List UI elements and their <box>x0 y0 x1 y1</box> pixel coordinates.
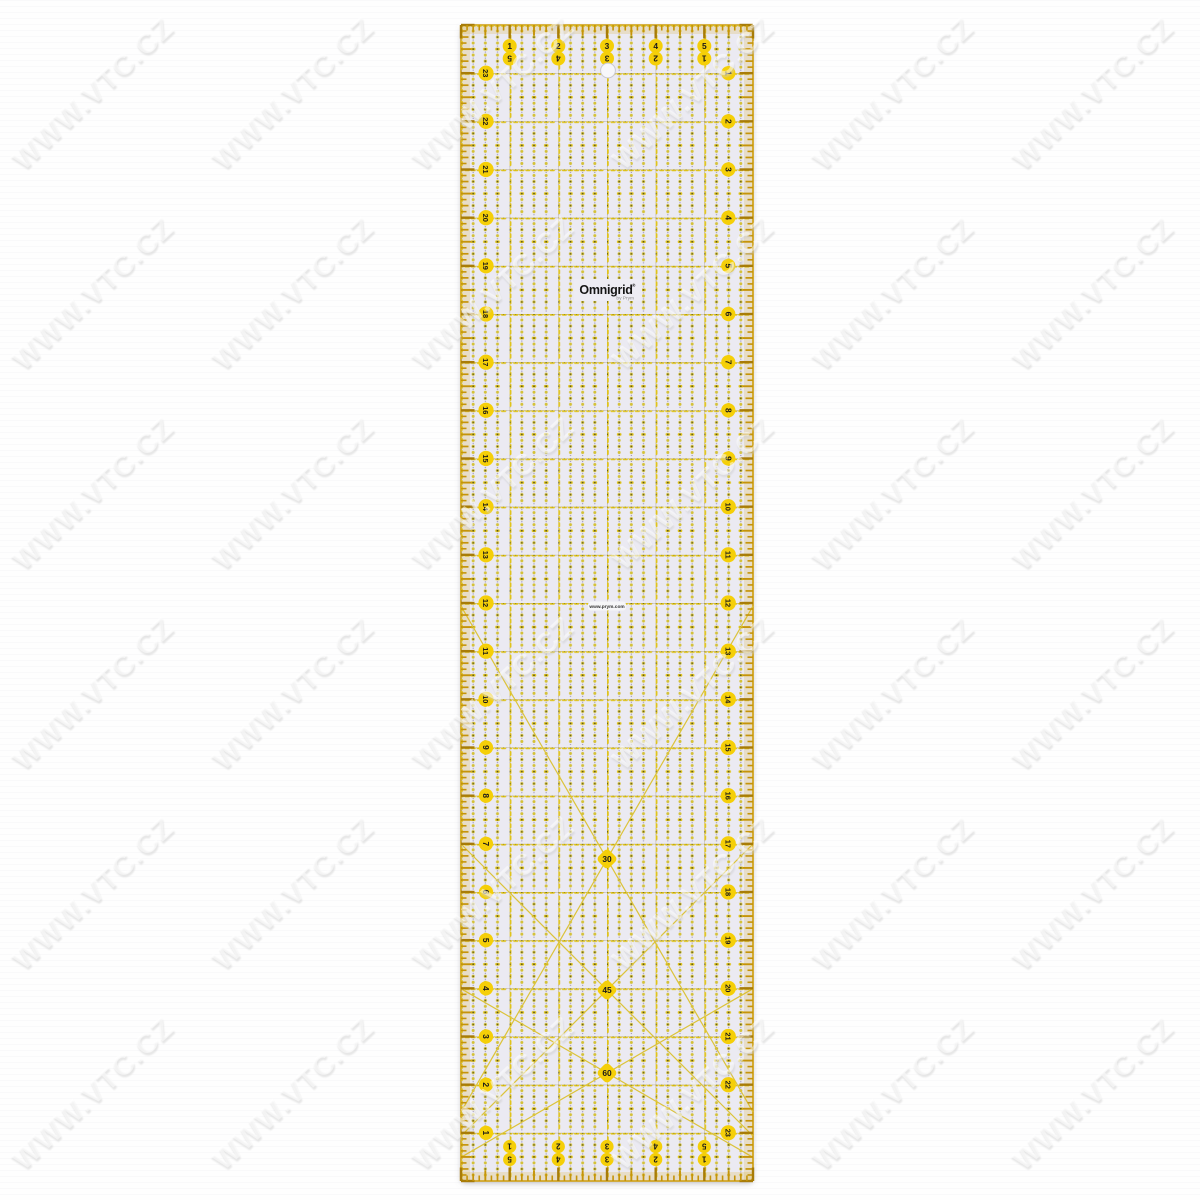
svg-text:by Prym: by Prym <box>616 296 634 302</box>
svg-text:8: 8 <box>723 408 733 413</box>
svg-text:2: 2 <box>723 119 733 124</box>
svg-text:1: 1 <box>481 1130 491 1135</box>
svg-text:3: 3 <box>604 54 609 64</box>
svg-text:4: 4 <box>481 986 491 991</box>
svg-text:2: 2 <box>653 54 658 64</box>
svg-text:4: 4 <box>653 41 658 51</box>
svg-text:4: 4 <box>723 215 733 220</box>
svg-text:5: 5 <box>481 938 491 943</box>
svg-text:17: 17 <box>481 358 490 366</box>
svg-text:15: 15 <box>723 743 732 751</box>
svg-text:16: 16 <box>723 792 732 800</box>
svg-text:3: 3 <box>481 1034 491 1039</box>
svg-text:3: 3 <box>604 1142 609 1151</box>
svg-text:19: 19 <box>723 936 732 944</box>
svg-text:13: 13 <box>481 551 490 559</box>
svg-text:4: 4 <box>556 1155 561 1164</box>
svg-text:16: 16 <box>481 406 490 414</box>
svg-text:30: 30 <box>602 854 612 864</box>
svg-text:3: 3 <box>723 167 733 172</box>
svg-text:6: 6 <box>723 312 733 317</box>
svg-text:15: 15 <box>481 454 490 462</box>
svg-text:45: 45 <box>602 985 612 995</box>
svg-text:5: 5 <box>507 1155 512 1164</box>
svg-text:60: 60 <box>602 1068 612 1078</box>
svg-text:20: 20 <box>723 984 732 992</box>
svg-text:5: 5 <box>702 1142 707 1151</box>
svg-text:21: 21 <box>481 165 490 173</box>
svg-text:www.prym.com: www.prym.com <box>588 604 624 610</box>
svg-text:1: 1 <box>507 41 512 51</box>
svg-text:10: 10 <box>723 503 732 511</box>
svg-text:11: 11 <box>723 551 732 559</box>
svg-text:8: 8 <box>481 793 491 798</box>
svg-text:5: 5 <box>702 41 707 51</box>
svg-text:3: 3 <box>605 41 610 51</box>
svg-text:1: 1 <box>702 1155 707 1164</box>
svg-text:14: 14 <box>723 695 732 704</box>
svg-text:20: 20 <box>481 214 490 222</box>
svg-text:Omnigrid: Omnigrid <box>579 283 632 297</box>
svg-text:23: 23 <box>723 1129 732 1137</box>
svg-text:12: 12 <box>723 599 732 607</box>
svg-text:7: 7 <box>723 360 733 365</box>
svg-text:2: 2 <box>556 1142 561 1151</box>
svg-text:12: 12 <box>481 599 490 607</box>
svg-text:1: 1 <box>507 1142 512 1151</box>
svg-text:7: 7 <box>481 841 491 846</box>
svg-text:9: 9 <box>481 745 491 750</box>
svg-text:19: 19 <box>481 262 490 270</box>
svg-text:11: 11 <box>481 647 490 655</box>
